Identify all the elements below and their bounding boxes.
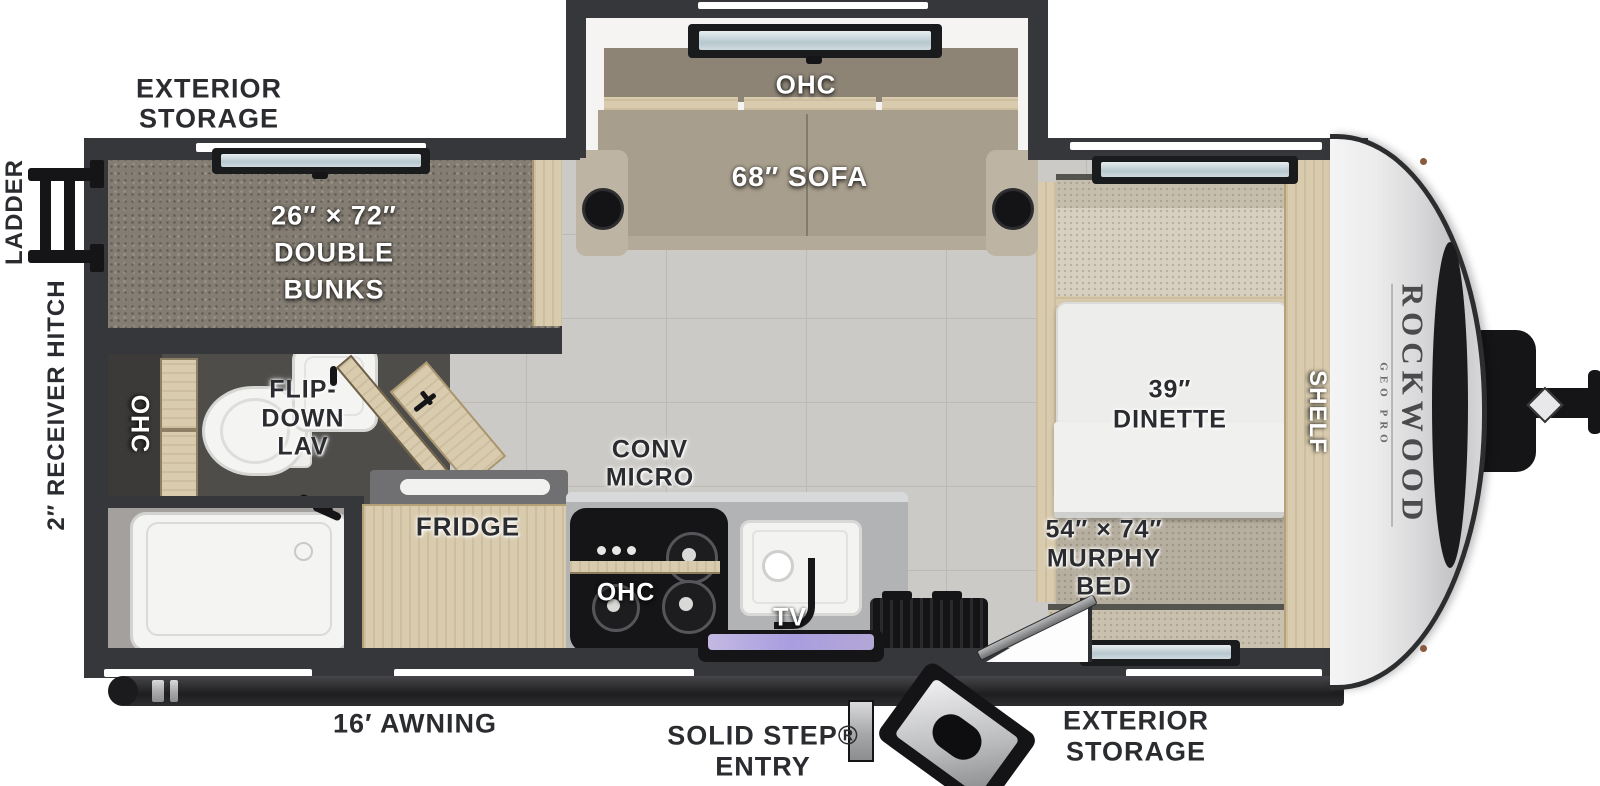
label-exterior-storage-bottom-2: STORAGE: [1066, 737, 1206, 768]
front-cap-windshield: [1432, 242, 1468, 568]
cupholder-left: [582, 188, 624, 230]
label-double-bunks-2: DOUBLE: [274, 238, 394, 269]
ladder-rail-bottom: [28, 250, 94, 263]
cooktop-knob-2: [612, 546, 621, 555]
label-conv-micro-2: MICRO: [606, 464, 694, 493]
label-shelf: SHELF: [1303, 370, 1331, 454]
bunk-window-glass: [221, 154, 421, 167]
label-exterior-storage-top-1: EXTERIOR: [136, 74, 282, 105]
cupholder-right: [992, 188, 1034, 230]
label-double-bunks-3: BUNKS: [283, 275, 384, 306]
brand-name: ROCKWOOD: [1395, 284, 1431, 527]
dinette-cushion: [1056, 208, 1286, 300]
cooktop-knob-1: [597, 546, 606, 555]
burner-top-right-cap: [682, 548, 696, 562]
dinette-window-top-glass: [1101, 162, 1289, 177]
label-dinette-1: 39″: [1149, 376, 1192, 405]
label-solid-step-1: SOLID STEP®: [667, 721, 858, 752]
slide-window-glass: [699, 31, 931, 50]
front-cap-rivet-top: [1420, 158, 1427, 165]
label-dinette-2: DINETTE: [1113, 406, 1227, 435]
murphy-bed-panel: [1054, 422, 1284, 518]
label-ohc-kitchen: OHC: [597, 579, 656, 608]
awning-roller: [112, 676, 1344, 706]
trim-top-right: [1070, 142, 1322, 150]
bunk-base-wall: [98, 326, 562, 354]
furnace-tab-2: [932, 591, 962, 600]
bath-ohc-door-lower: [160, 430, 198, 502]
front-cap-rivet-bottom: [1420, 645, 1427, 652]
label-exterior-storage-top-2: STORAGE: [139, 104, 279, 135]
label-fridge: FRIDGE: [416, 512, 520, 543]
ladder-bracket-1: [90, 160, 104, 188]
slide-wall-left: [566, 0, 586, 158]
label-murphy-bed-1: 54″ × 74″: [1045, 516, 1162, 545]
ladder-rung-2: [64, 168, 75, 263]
label-exterior-storage-bottom-1: EXTERIOR: [1063, 706, 1209, 737]
burner-bottom-right-cap: [679, 597, 693, 611]
bathtub-inner: [146, 522, 332, 636]
furnace-tab-1: [882, 591, 912, 600]
label-ohc-bath: OHC: [125, 395, 154, 454]
stove-shelf-trim: [570, 561, 720, 574]
trim-slide-top: [698, 2, 928, 9]
bath-shower-divider: [106, 496, 352, 508]
cooktop-knob-3: [627, 546, 636, 555]
label-flip-down-lav-1: FLIP-: [269, 376, 337, 405]
bathtub-drain: [294, 542, 313, 561]
bath-ohc-door-upper: [160, 358, 198, 430]
label-solid-step-2: ENTRY: [715, 752, 811, 783]
floorplan: ROCKWOOD GEO PRO EXTERIOR STORAGE LADDER…: [0, 0, 1600, 786]
label-receiver-hitch: 2″ RECEIVER HITCH: [43, 279, 71, 530]
left-wall: [84, 138, 108, 676]
label-murphy-bed-2: MURPHY: [1047, 545, 1161, 574]
slide-window-latch: [806, 56, 822, 64]
bunk-window-latch: [312, 172, 328, 179]
dinette-window-bottom-glass: [1089, 645, 1231, 659]
sofa-front-edge: [598, 236, 1018, 250]
brand-logo: ROCKWOOD GEO PRO: [1378, 284, 1431, 527]
brand-sub: GEO PRO: [1378, 284, 1393, 527]
awning-end-cap: [108, 676, 138, 706]
label-murphy-bed-3: BED: [1076, 573, 1132, 602]
label-double-bunks-1: 26″ × 72″: [271, 201, 397, 232]
furnace: [870, 598, 988, 652]
bunk-side-trim: [532, 158, 562, 326]
ladder-rail-top: [28, 168, 94, 181]
label-ohc-slide: OHC: [776, 70, 837, 101]
label-tv: TV: [773, 604, 807, 633]
awning-hinge-2: [170, 680, 178, 702]
ladder-bracket-2: [90, 244, 104, 272]
label-ladder: LADDER: [1, 159, 29, 265]
hitch-coupler: [1588, 370, 1600, 434]
slide-wall-right: [1028, 0, 1048, 158]
kitchen-counter-edge: [566, 492, 908, 502]
awning-hinge: [152, 680, 164, 702]
dish-tray-inner: [708, 634, 874, 650]
label-sofa: 68″ SOFA: [732, 161, 869, 193]
dinette-bench-top: [1056, 180, 1288, 210]
label-awning: 16′ AWNING: [333, 709, 497, 740]
label-conv-micro-1: CONV: [612, 436, 688, 465]
label-flip-down-lav-2: DOWN: [261, 405, 344, 434]
fridge-counter-trim: [400, 479, 550, 495]
shower-kitchen-wall: [344, 496, 364, 654]
ladder-rung-1: [40, 168, 51, 263]
label-flip-down-lav-3: LAV: [277, 433, 328, 462]
